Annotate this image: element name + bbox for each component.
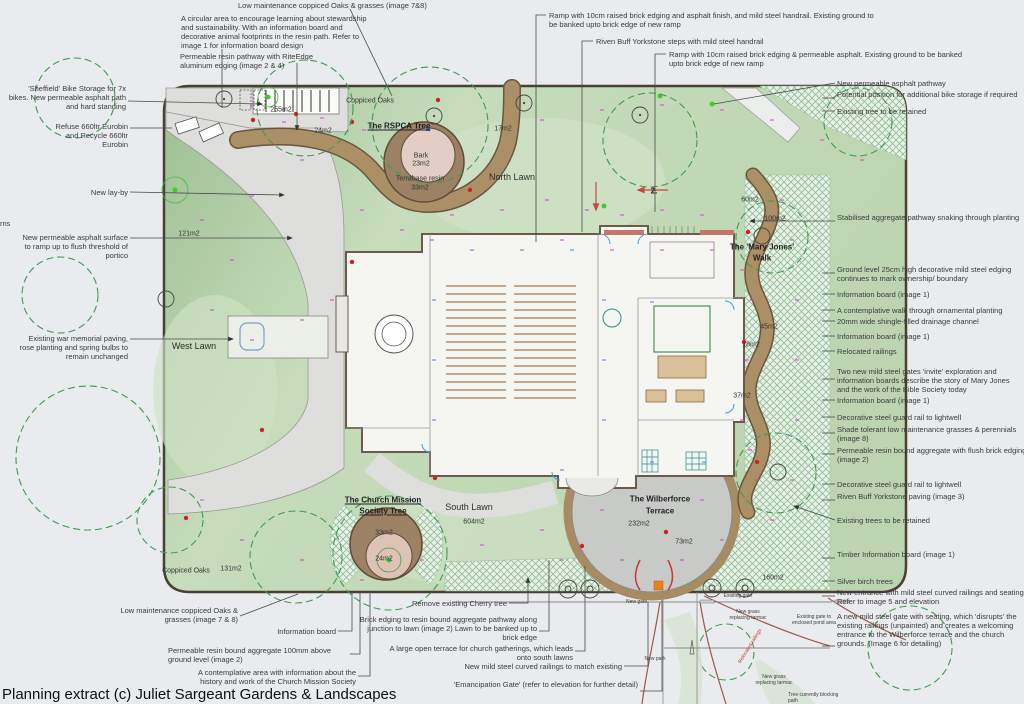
annotation-label: New entrance with mild steel curved rail… <box>837 588 1024 606</box>
site-plan-page: Low maintenance coppiced Oaks & grasses … <box>0 0 1024 704</box>
annotation-label: A new mild steel gate with seating, whic… <box>837 612 1024 648</box>
annotation-label: Existing trees to be retained <box>837 516 1022 525</box>
annotation-label: Existing war memorial paving, rose plant… <box>18 334 128 361</box>
plan-label: Coppiced Oaks <box>346 98 394 105</box>
plan-label: 17m2 <box>494 126 512 133</box>
plan-label: 60m2 <box>741 197 759 204</box>
plan-label: Terrace <box>646 507 674 516</box>
plan-label: 24m2 <box>314 128 332 135</box>
annotation-label: Silver birch trees <box>837 577 1022 586</box>
annotation-label: Decorative steel guard rail to lightwell <box>837 480 1022 489</box>
annotation-label: Decorative steel guard rail to lightwell <box>837 413 1022 422</box>
annotation-label: Existing gate <box>718 594 758 600</box>
plan-label: 18m2 <box>742 342 760 349</box>
plan-label: 45m2 <box>760 324 778 331</box>
plan-label: Terrabase resin <box>396 176 444 183</box>
plan-label: South Lawn <box>445 502 493 512</box>
annotation-label: Permeable resin pathway with RiteEdge al… <box>180 52 330 70</box>
annotation-label: New gate <box>626 600 658 606</box>
annotation-label: New mild steel curved railings to match … <box>420 662 622 671</box>
plan-label: 160m2 <box>762 575 783 582</box>
annotation-label: Stabilised aggregate pathway snaking thr… <box>837 213 1022 222</box>
plan-label: Walk <box>753 254 771 263</box>
annotation-label: Ramp with 10cm raised brick edging & per… <box>669 50 964 68</box>
annotation-label: Low maintenance coppiced Oaks & grasses … <box>238 1 458 10</box>
annotation-label: Remove existing Cherry tree <box>335 599 507 608</box>
annotation-label: New permeable asphalt surface to ramp up… <box>18 233 128 260</box>
annotation-label: Information board (image 1) <box>837 290 1019 299</box>
annotation-label: A large open terrace for church gatherin… <box>385 644 573 662</box>
plan-label: Bark <box>414 153 428 160</box>
annotation-label: Two new mild steel gates 'invite' explor… <box>837 367 1022 394</box>
plan-label: North Lawn <box>489 172 535 182</box>
annotation-label: Relocated railings <box>837 347 1019 356</box>
plan-label: The RSPCA Tree <box>368 122 431 131</box>
plan-label: The 'Mary Jones' <box>730 243 794 252</box>
annotation-label: Shade tolerant low maintenance grasses &… <box>837 425 1024 443</box>
annotation-label: New path <box>638 657 672 663</box>
plan-label: 73m2 <box>675 539 693 546</box>
annotation-label: Riven Buff Yorkstone steps with mild ste… <box>596 37 856 46</box>
annotation-label: Tree currently blocking path <box>788 693 840 704</box>
annotation-label: Riven Buff Yorkstone paving (image 3) <box>837 492 1022 501</box>
plan-label: 604m2 <box>463 519 484 526</box>
annotation-label: Ramp with 10cm raised brick edging and a… <box>549 11 884 29</box>
plan-label: 33m2 <box>375 530 393 537</box>
plan-label: 2. <box>651 187 658 196</box>
annotation-label: Permeable resin bound aggregate with flu… <box>837 446 1024 464</box>
plan-label: 255m2 <box>270 107 291 114</box>
plan-label: 232m2 <box>628 521 649 528</box>
annotation-label: Refuse 660ltr Eurobin and Recycle 660ltr… <box>44 122 128 149</box>
annotation-label: Timber Information board (image 1) <box>837 550 1022 559</box>
plan-label: 121m2 <box>178 231 199 238</box>
plan-label: Society Tree <box>359 507 406 516</box>
annotation-label: New permeable asphalt pathway <box>837 79 1019 88</box>
plan-label: The Church Mission <box>345 496 421 505</box>
annotation-label: Information board (image 1) <box>837 396 1019 405</box>
annotation-label: Potential position for additional bike s… <box>837 90 1019 99</box>
annotation-label: Information board <box>256 627 336 636</box>
plan-label: 37m2 <box>733 393 751 400</box>
plan-label: 131m2 <box>220 566 241 573</box>
annotation-label: Ground level 25cm high decorative mild s… <box>837 265 1022 283</box>
annotation-label: 'Sheffield' Bike Storage for 7x bikes. N… <box>8 84 126 111</box>
annotation-label: Existing tree to be retained <box>837 107 1019 116</box>
annotation-label: rns <box>0 219 22 228</box>
credit-line: Planning extract (c) Juliet Sargeant Gar… <box>2 686 396 703</box>
annotation-label: Low maintenance coppiced Oaks & grasses … <box>100 606 238 624</box>
plan-label: 33m2 <box>411 185 429 192</box>
annotation-label: New grass replacing tarmac <box>752 675 796 687</box>
plan-label: 100m2 <box>764 216 785 223</box>
annotation-label: Existing gate to enclosed pond area <box>790 615 838 627</box>
annotation-label: Permeable resin bound aggregate 100mm ab… <box>168 646 356 664</box>
plan-label: Coppiced Oaks <box>162 568 210 575</box>
annotation-label: A circular area to encourage learning ab… <box>181 14 379 50</box>
plan-label: The Wilberforce <box>630 495 690 504</box>
annotation-label: A contemplative area with information ab… <box>188 668 356 686</box>
annotation-label: A contemplative walk through ornamental … <box>837 306 1024 315</box>
church-mission-tree <box>350 508 422 580</box>
annotation-label: 20mm wide shingle-filled drainage channe… <box>837 317 1024 326</box>
annotation-label: New lay-by <box>62 188 128 197</box>
annotation-label: Information board (image 1) <box>837 332 1019 341</box>
war-memorial <box>228 316 328 358</box>
annotation-label: 'Emancipation Gate' (refer to elevation … <box>432 680 638 689</box>
plan-label: 23m2 <box>412 161 430 168</box>
annotation-label: Brick edging to resin bound aggregate pa… <box>352 615 537 642</box>
plan-label: West Lawn <box>172 341 216 351</box>
plan-label: 24m2 <box>375 556 393 563</box>
